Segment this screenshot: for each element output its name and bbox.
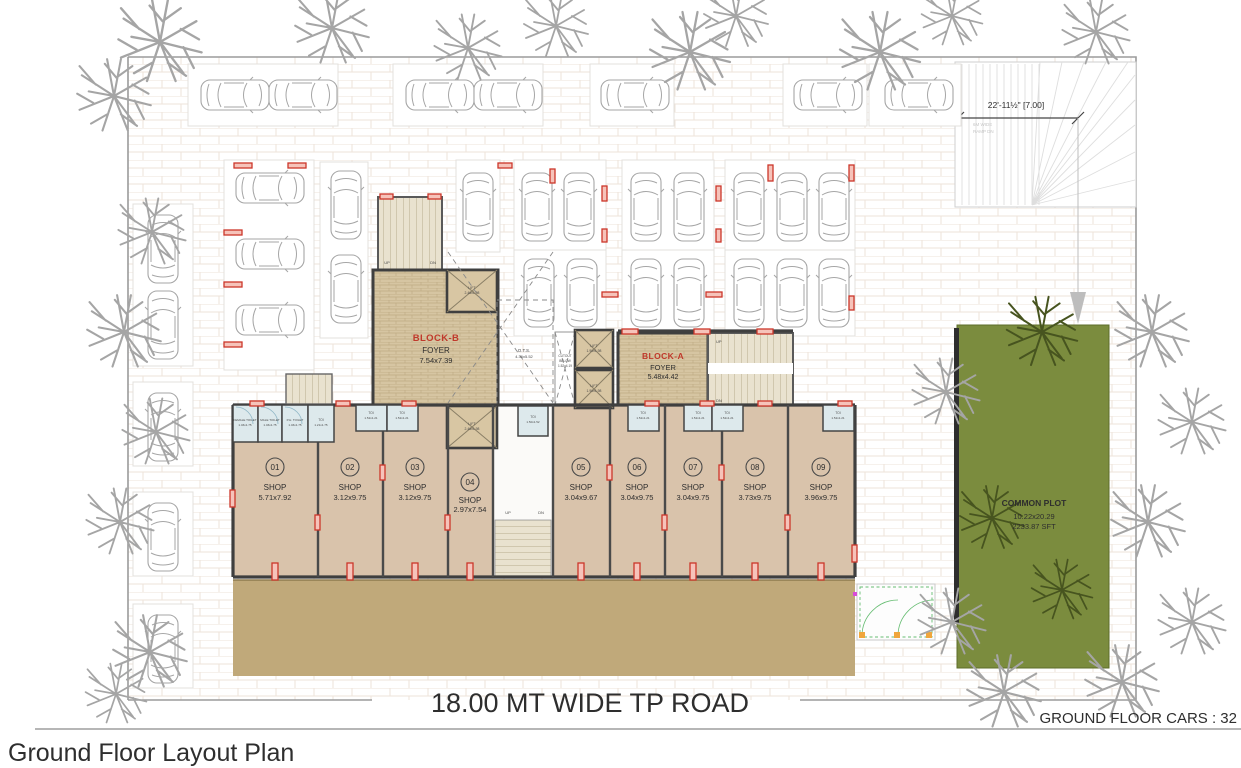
toilet-dim: 1.52x1.21 [691,416,705,420]
toilet-dim: 1.50x1.52 [526,420,540,424]
car-icon [521,259,557,327]
car-icon [731,173,767,241]
car-icon [628,259,664,327]
toilet-dim: 1.52x1.21 [364,416,378,420]
toilet-label: TOI [368,411,373,415]
ground-floor-cars-note: GROUND FLOOR CARS : 32 [1039,710,1237,727]
cutout-dim: 1.52x4.19 [558,364,572,368]
car-icon [774,259,810,327]
ramp-dimension: 22'-11½" [7.00] [988,100,1044,110]
toilet-label: FEMALE TOILET [233,418,256,422]
car-icon [774,173,810,241]
car-icon [236,170,304,206]
tree-icon [1158,388,1225,453]
toilet-dim: 1.52x1.21 [720,416,734,420]
toilet-dim: 1.52x1.21 [636,416,650,420]
shop-number: 05 [577,463,586,472]
block-a-name: BLOCK-A [642,351,684,361]
car-icon [269,77,337,113]
ramp-note-line2: RAMP DN [973,129,994,134]
car-icon [601,77,669,113]
toilet-label: TOI [695,411,700,415]
toilet-label: TOI [724,411,729,415]
block-a-dim: 5.48x4.42 [648,374,679,381]
car-icon [201,77,269,113]
lift-dim: 1.90x1.98 [587,349,602,353]
road-strip [233,580,855,676]
toilet-label: P.H. TOILET [287,418,304,422]
stair-up: UP [716,339,722,344]
shop-label: SHOP [459,496,482,505]
stair-dn: DN [538,510,544,515]
road-label: 18.00 MT WIDE TP ROAD [431,688,749,718]
lift-label: LIFT [590,384,598,388]
car-icon [816,259,852,327]
car-icon [145,503,181,571]
car-icon [731,259,767,327]
car-icon [328,171,364,239]
tree-icon [922,0,983,45]
stair-up: UP [384,260,390,265]
stair-up: UP [505,510,511,515]
car-icon [885,77,953,113]
car-icon [236,236,304,272]
common-plot-name: COMMON PLOT [1002,498,1067,508]
common-plot-area: 2233.87 SFT [1012,522,1056,531]
block-b-dim: 7.54x7.39 [420,356,453,365]
ots-dim: 4.36x5.52 [515,354,533,359]
toilet-dim: 1.21x1.75 [314,423,328,427]
shop-label: SHOP [404,483,427,492]
block-a-kind: FOYER [650,363,676,372]
shop-number: 08 [751,463,760,472]
toilet-label: MALE TOILET [260,418,280,422]
stair-dn: DN [430,260,436,265]
shop-dim: 2.97x7.54 [454,505,487,514]
shop-dim: 3.04x9.75 [677,493,710,502]
floor-plan-drawing: 22'-11½" [7.00] 6M WIDE RAMP DN BLOCK-B … [0,0,1241,768]
lift-dim: 2.46x1.98 [465,427,480,431]
toilet-label: TOI [318,418,323,422]
car-icon [328,255,364,323]
shop-label: SHOP [744,483,767,492]
lift-label: LIFT [468,286,476,290]
car-icon [561,173,597,241]
cutout-line1: CUTOUT [558,354,571,358]
entry-gate [853,584,935,640]
car-icon [460,173,496,241]
car-icon [474,77,542,113]
shop-dim: 3.73x9.75 [739,493,772,502]
block-b-name: BLOCK-B [413,333,460,344]
toilet-label: TOI [835,411,840,415]
shop-number: 09 [817,463,826,472]
shop-number: 07 [689,463,698,472]
shop-label: SHOP [810,483,833,492]
car-icon [236,302,304,338]
toilet-label: TOI [530,415,535,419]
shop-dim: 3.12x9.75 [399,493,432,502]
shop-label: SHOP [626,483,649,492]
tree-icon [1062,0,1129,64]
lift-dim: 2.46x1.98 [465,291,480,295]
shop-dim: 3.12x9.75 [334,493,367,502]
car-icon [816,173,852,241]
shop-label: SHOP [682,483,705,492]
shop-dim: 3.04x9.75 [621,493,654,502]
ots-name: O.T.S. [518,348,531,353]
toilet-dim: 1.52x1.21 [831,416,845,420]
tree-icon [524,0,588,56]
shop-label: SHOP [264,483,287,492]
shop-dim: 3.96x9.75 [805,493,838,502]
shop-dim: 3.04x9.67 [565,493,598,502]
block-b-kind: FOYER [422,346,450,355]
toilet-dim: 1.46x1.75 [288,423,302,427]
floor-plan-page: 22'-11½" [7.00] 6M WIDE RAMP DN BLOCK-B … [0,0,1241,768]
car-icon [794,77,862,113]
tree-icon [295,0,369,63]
toilet-label: TOI [399,411,404,415]
tree-icon [1158,588,1225,653]
lift-dim: 1.90x1.98 [587,389,602,393]
shop-number: 04 [466,478,475,487]
shop-label: SHOP [339,483,362,492]
shop-dim: 5.71x7.92 [259,493,292,502]
car-icon [671,173,707,241]
common-plot-dim: 10.22x20.29 [1013,512,1054,521]
toilet-dim: 1.46x1.75 [238,423,252,427]
lift-label: LIFT [468,422,476,426]
lift-label: LIFT [590,344,598,348]
shop-label: SHOP [570,483,593,492]
toilet-dim: 1.46x1.75 [263,423,277,427]
car-icon [628,173,664,241]
car-icon [671,259,707,327]
cutout-line2: BELOW [559,359,571,363]
page-title: Ground Floor Layout Plan [8,739,294,767]
shop-number: 06 [633,463,642,472]
shop-number: 02 [346,463,355,472]
ramp-note-line1: 6M WIDE [973,122,992,127]
stair-dn: DN [716,398,722,403]
car-icon [406,77,474,113]
toilet-dim: 1.52x1.21 [395,416,409,420]
toilet-label: TOI [640,411,645,415]
shop-number: 03 [411,463,420,472]
car-icon [564,259,600,327]
shop-number: 01 [271,463,280,472]
